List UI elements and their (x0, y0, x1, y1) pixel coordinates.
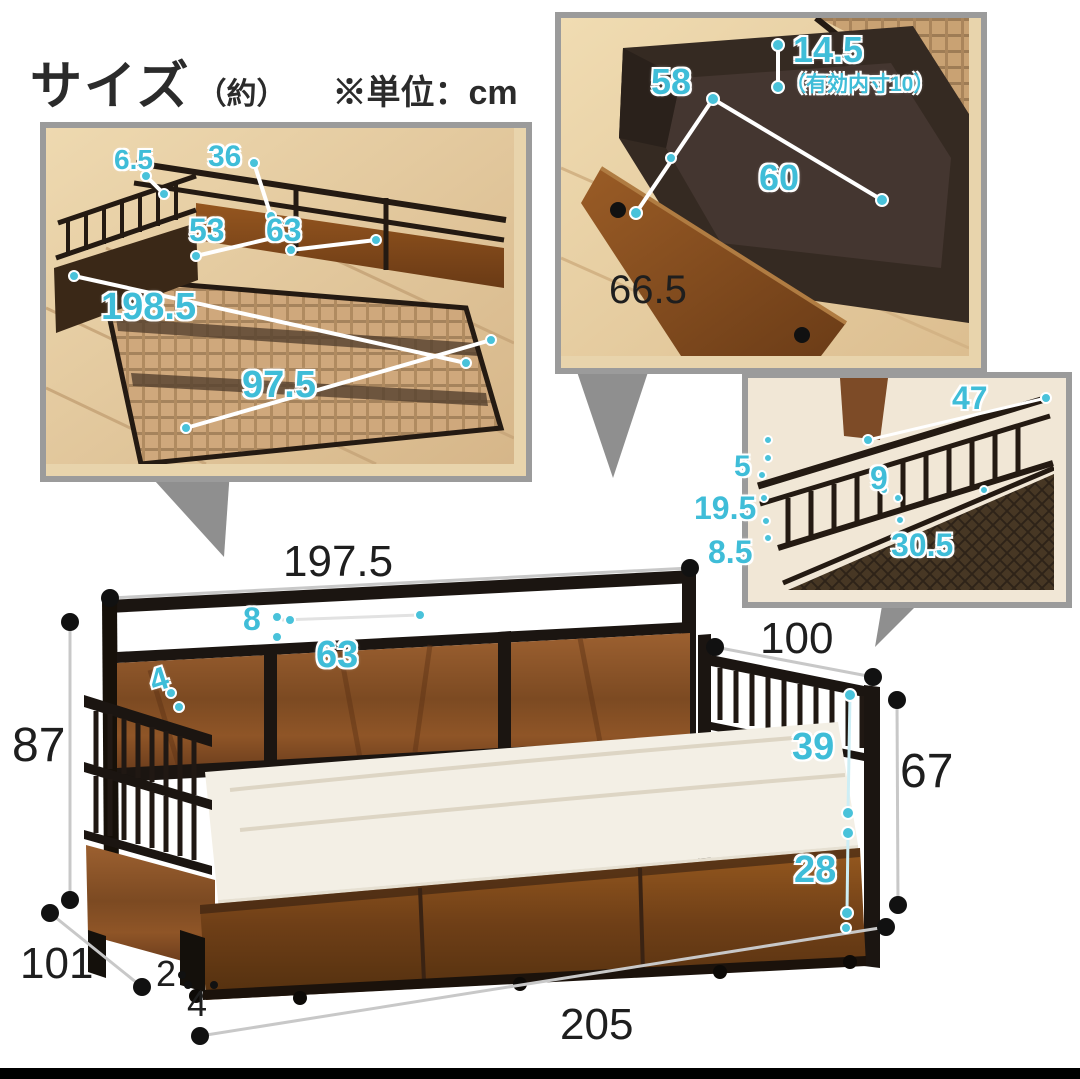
title-unit-note: ※単位：cm (332, 74, 517, 112)
inset-side-rail-detail: 475919.58.530.5 (742, 372, 1072, 608)
rail-photo (748, 378, 1054, 590)
drawer-photo (561, 18, 969, 356)
inset-bed-frame-top-view: 6.5365363198.597.5 (40, 122, 532, 482)
arrow-from-frame-inset (145, 470, 230, 557)
inset-storage-drawer: 5814.5（有効内寸10）6066.5 (555, 12, 987, 374)
size-diagram-page: サイズ（約）※単位：cm (0, 0, 1080, 1079)
title-size-label: サイズ (30, 58, 190, 116)
arrow-from-drawer-inset (573, 360, 652, 478)
page-title: サイズ（約）※単位：cm (30, 44, 518, 119)
bottom-black-bar (0, 1068, 1080, 1079)
daybed-photo (84, 570, 880, 1005)
frame-photo (46, 128, 514, 464)
title-approx: （約） (196, 78, 286, 111)
